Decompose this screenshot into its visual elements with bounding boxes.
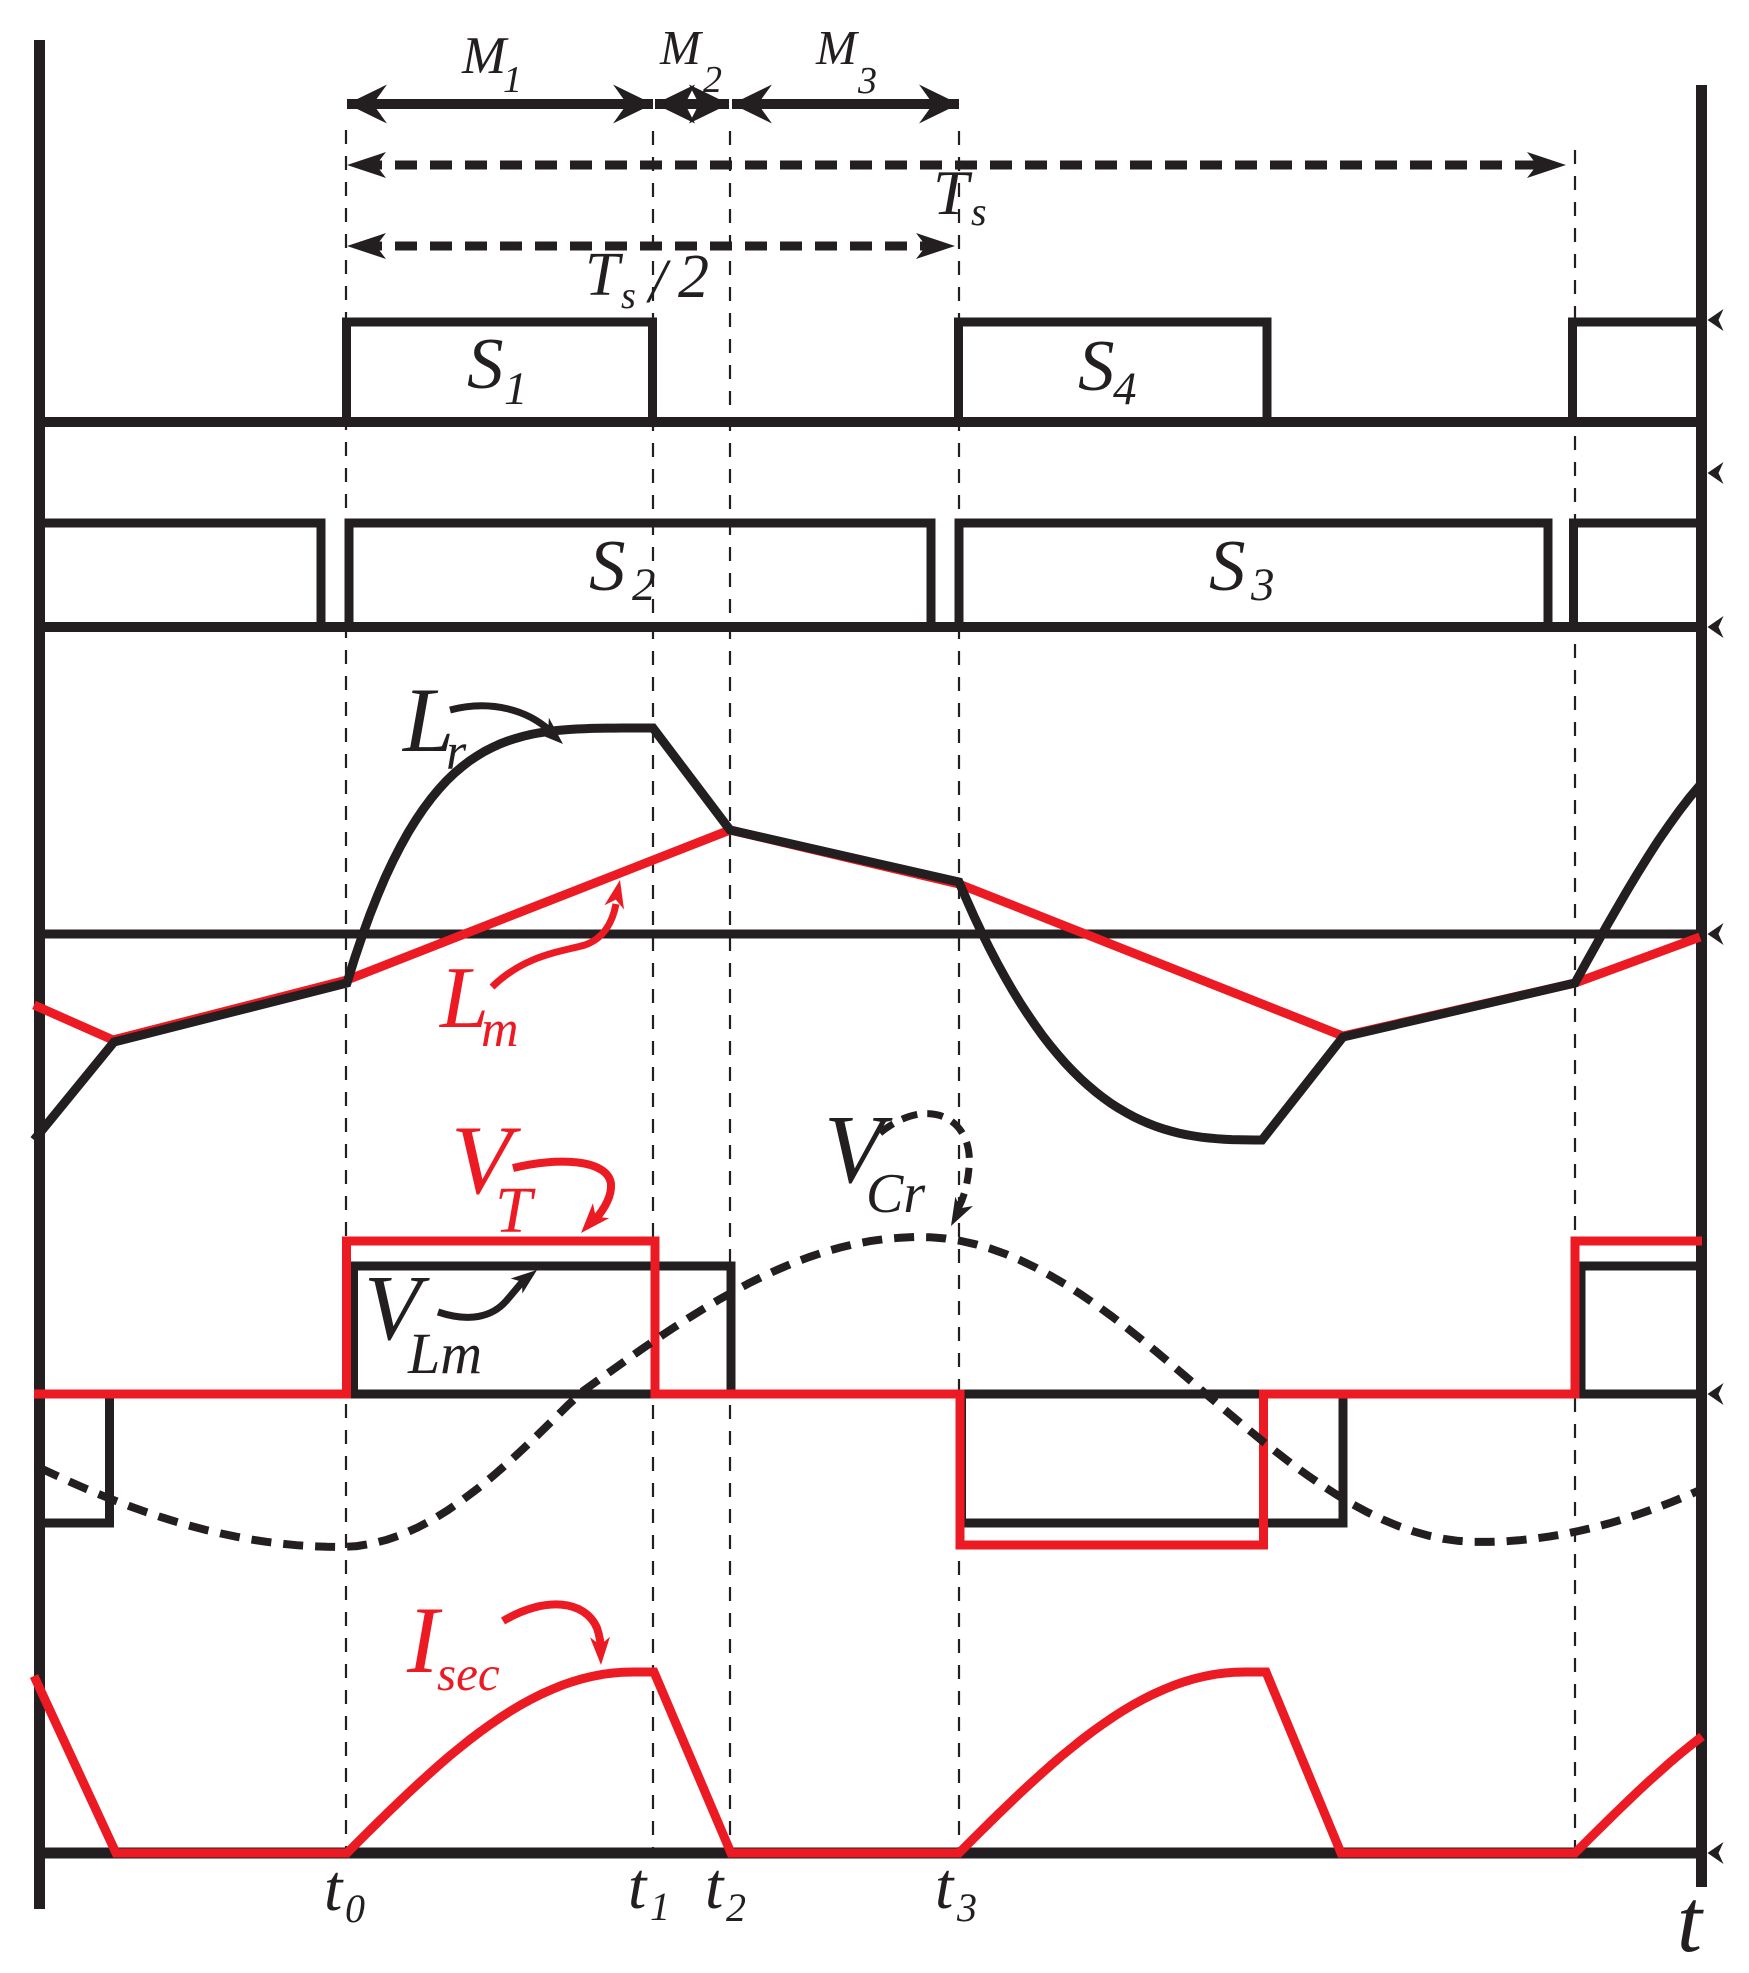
svg-text:S: S xyxy=(1078,325,1115,406)
svg-text:2: 2 xyxy=(726,1885,746,1930)
svg-text:T: T xyxy=(495,1174,536,1247)
svg-text:M: M xyxy=(815,20,860,75)
svg-text:s: s xyxy=(621,275,636,317)
svg-text:0: 0 xyxy=(345,1886,365,1931)
svg-text:M: M xyxy=(461,27,509,85)
svg-text:1: 1 xyxy=(503,59,522,101)
svg-text:3: 3 xyxy=(956,1885,977,1930)
svg-text:S: S xyxy=(467,323,504,404)
svg-text:2: 2 xyxy=(678,243,709,311)
svg-text:m: m xyxy=(481,1001,519,1058)
svg-text:t: t xyxy=(1677,1872,1704,1971)
svg-text:t: t xyxy=(935,1850,955,1923)
svg-text:3: 3 xyxy=(857,60,877,102)
svg-text:T: T xyxy=(585,241,624,309)
svg-text:3: 3 xyxy=(1250,559,1275,611)
svg-text:sec: sec xyxy=(437,1646,500,1701)
svg-text:4: 4 xyxy=(1113,363,1137,415)
svg-text:t: t xyxy=(705,1850,725,1923)
svg-text:T: T xyxy=(933,157,973,228)
svg-text:Lm: Lm xyxy=(407,1321,482,1386)
svg-text:S: S xyxy=(1209,525,1246,606)
svg-text:Cr: Cr xyxy=(866,1163,925,1225)
svg-text:1: 1 xyxy=(650,1884,670,1929)
svg-text:r: r xyxy=(446,724,467,781)
svg-text:2: 2 xyxy=(703,59,722,101)
svg-text:2: 2 xyxy=(632,559,656,611)
svg-text:t: t xyxy=(628,1850,648,1923)
svg-text:/: / xyxy=(646,248,671,316)
svg-text:t: t xyxy=(324,1852,344,1925)
svg-text:S: S xyxy=(589,525,626,606)
svg-text:s: s xyxy=(971,189,987,234)
svg-text:M: M xyxy=(659,20,704,75)
svg-text:1: 1 xyxy=(504,363,528,415)
